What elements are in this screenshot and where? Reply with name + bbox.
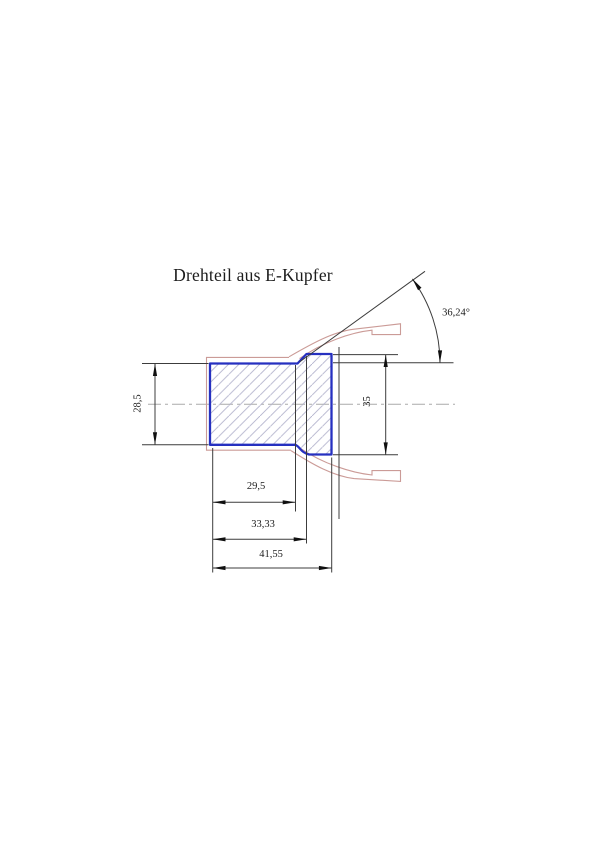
drawing-title: Drehteil aus E-Kupfer: [173, 265, 333, 285]
arrow-angle-bottom: [438, 350, 442, 362]
length-33-33-label: 33,33: [251, 519, 275, 530]
arrow-33-33-left: [213, 537, 226, 541]
arrow-41-55-right: [319, 566, 332, 570]
arrow-28-5-down: [153, 432, 157, 445]
arrow-29-5-right: [283, 500, 296, 504]
large-diameter-label: 35: [362, 396, 373, 407]
total-length-label: 41,55: [259, 549, 283, 560]
technical-drawing-canvas: Drehteil aus E-Kupfer: [0, 0, 600, 848]
arrow-angle-top: [412, 279, 421, 290]
length-29-5-label: 29,5: [247, 481, 265, 492]
angle-arc: [412, 279, 440, 363]
arrow-28-5-up: [153, 364, 157, 377]
arrow-35-up: [384, 355, 388, 367]
small-diameter-label: 28,5: [133, 394, 144, 412]
drawing-page: Drehteil aus E-Kupfer: [0, 0, 600, 848]
arrow-41-55-left: [213, 566, 226, 570]
arrow-33-33-right: [294, 537, 307, 541]
part-cross-section: [210, 354, 332, 455]
arrow-29-5-left: [213, 500, 226, 504]
flare-angle-label: 36,24°: [442, 308, 470, 319]
arrow-35-down: [384, 442, 388, 454]
